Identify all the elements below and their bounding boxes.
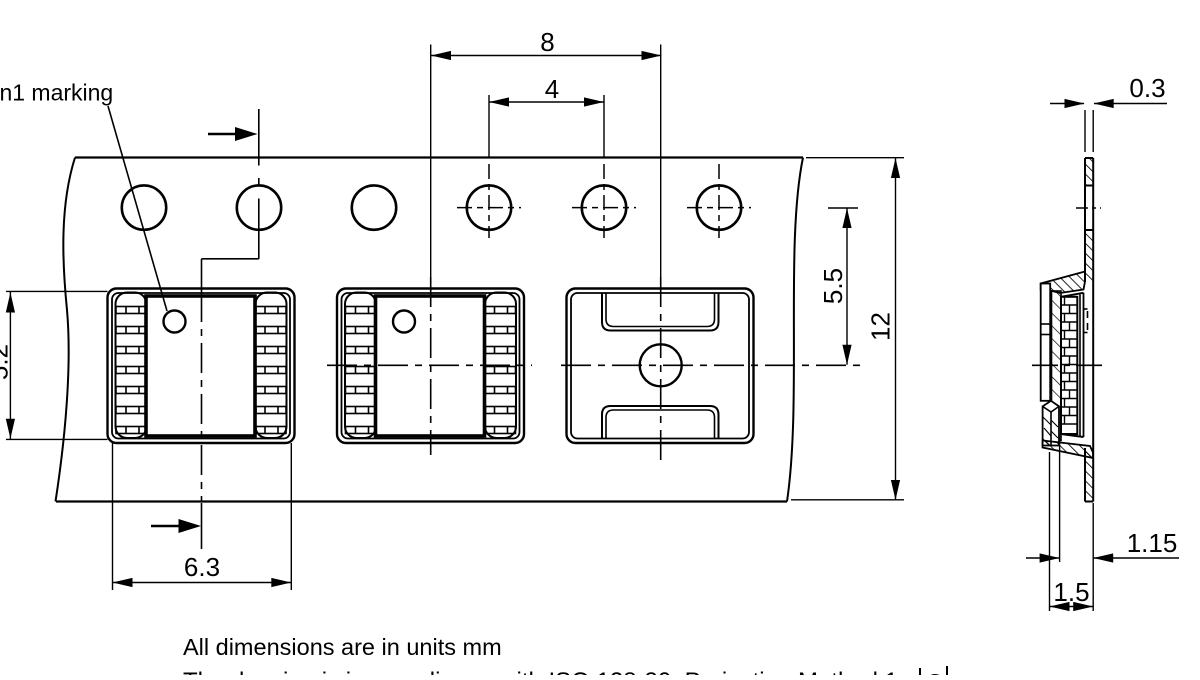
svg-text:4: 4: [545, 74, 559, 104]
svg-text:1.5: 1.5: [1053, 577, 1089, 607]
svg-text:5.5: 5.5: [818, 268, 848, 304]
svg-text:12: 12: [866, 312, 896, 341]
svg-text:6.3: 6.3: [184, 552, 220, 582]
svg-text:The drawing is in compliance w: The drawing is in compliance with ISO 12…: [183, 668, 898, 675]
svg-text:5.2: 5.2: [0, 344, 14, 380]
svg-text:All dimensions are in units mm: All dimensions are in units mm: [183, 634, 502, 660]
svg-text:0.3: 0.3: [1129, 73, 1165, 103]
svg-text:1.15: 1.15: [1127, 528, 1178, 558]
svg-text:8: 8: [540, 27, 554, 57]
svg-text:Pin1 marking: Pin1 marking: [0, 80, 113, 106]
